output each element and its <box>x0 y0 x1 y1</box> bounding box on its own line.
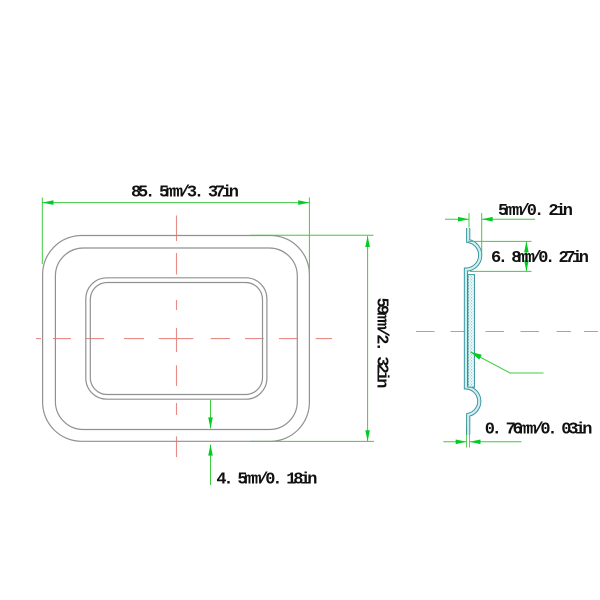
svg-text:59mm/2. 32in: 59mm/2. 32in <box>372 298 391 389</box>
svg-text:5mm/0. 2in: 5mm/0. 2in <box>498 202 573 221</box>
svg-text:6. 8mm/0. 27in: 6. 8mm/0. 27in <box>491 249 589 268</box>
svg-text:0. 76mm/0. 03in: 0. 76mm/0. 03in <box>485 421 593 440</box>
svg-text:4. 5mm/0. 18in: 4. 5mm/0. 18in <box>216 471 317 490</box>
svg-text:85. 5mm/3. 37in: 85. 5mm/3. 37in <box>131 184 239 203</box>
